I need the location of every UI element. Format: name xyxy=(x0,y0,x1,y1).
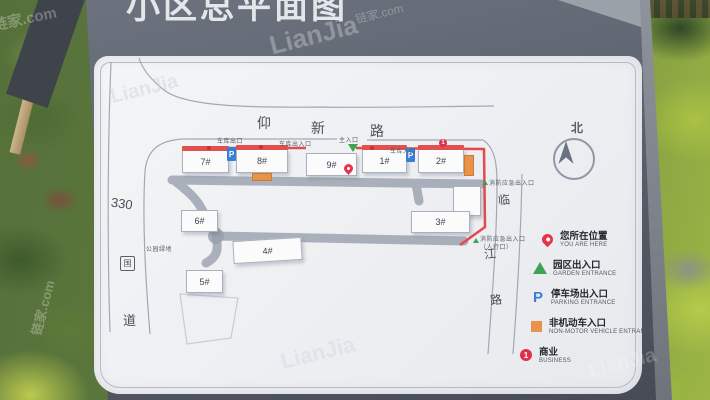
left-road-number: 330 xyxy=(110,195,134,213)
fence-trellis xyxy=(648,0,710,18)
business-circle-icon: 1 xyxy=(518,347,534,363)
park-green-label: 公园绿地 xyxy=(146,244,172,253)
building-7-label: 7# xyxy=(200,157,210,167)
parking-icon: P xyxy=(227,147,236,161)
legend-zh: 园区出入口 xyxy=(553,260,616,271)
map-legend: 您所在位置 YOU ARE HERE 园区出入口 GARDEN ENTRANCE… xyxy=(518,231,638,376)
top-road-upper-line xyxy=(139,58,494,107)
business-dot xyxy=(370,146,374,150)
legend-zh: 停车场出入口 xyxy=(551,289,615,300)
compass-icon xyxy=(553,138,595,180)
site-plan-panel: 7# 8# 9# 1# 2# 3# 6# 4# 5# P P 1 车库出口 xyxy=(94,56,642,394)
legend-zh: 商业 xyxy=(539,347,571,358)
right-road-name-char: 路 xyxy=(489,290,503,308)
nonmotor-entrance-icon xyxy=(252,173,272,181)
fire-exit-icon xyxy=(473,238,479,243)
legend-zh: 非机动车入口 xyxy=(549,318,654,329)
sign-title: 小区总平面图 xyxy=(126,0,348,28)
building-3-label: 3# xyxy=(435,217,445,227)
legend-en: PARKING ENTRANCE xyxy=(551,300,615,306)
business-marker: 1 xyxy=(439,139,447,147)
building-6-label: 6# xyxy=(194,216,204,226)
legend-en: YOU ARE HERE xyxy=(560,242,608,248)
parking-p-icon: P xyxy=(530,289,546,305)
building-8-label: 8# xyxy=(257,156,267,166)
building-4: 4# xyxy=(232,237,302,264)
building-1-label: 1# xyxy=(379,156,389,166)
main-entrance-icon xyxy=(348,144,358,152)
right-road-name-char: 临 xyxy=(497,190,511,208)
building-3: 3# xyxy=(411,211,470,233)
national-highway-shield: 国 xyxy=(120,256,135,271)
right-road-name-char: 江 xyxy=(483,244,497,262)
driveway-main xyxy=(172,180,482,184)
legend-en: NON-MOTOR VEHICLE ENTRANCE xyxy=(549,329,654,335)
compass-north-label: 北 xyxy=(571,119,583,136)
nonmotor-entrance-icon xyxy=(464,155,474,176)
highway-shield-char: 国 xyxy=(124,258,132,269)
orange-square-icon xyxy=(528,318,544,334)
photo-of-community-map-sign: 小区总平面图 xyxy=(0,0,710,400)
legend-row-garden-entrance: 园区出入口 GARDEN ENTRANCE xyxy=(532,260,638,284)
building-7: 7# xyxy=(182,150,229,173)
legend-en: GARDEN ENTRANCE xyxy=(553,271,616,277)
business-dot xyxy=(207,146,211,150)
main-entrance-label: 主入口 xyxy=(339,135,359,144)
building-5: 5# xyxy=(186,270,223,293)
building-9-label: 9# xyxy=(326,160,336,170)
building-2: 2# xyxy=(418,149,464,173)
legend-en: BUSINESS xyxy=(539,358,571,364)
building-5-label: 5# xyxy=(199,277,209,287)
legend-zh: 您所在位置 xyxy=(560,231,608,242)
top-road-name-char: 路 xyxy=(370,121,384,141)
compass-needle xyxy=(555,140,577,166)
plot-outline xyxy=(180,294,238,344)
location-pin-icon xyxy=(539,231,555,247)
driveway-connector xyxy=(416,184,419,201)
garage-entrance-exit-label: 车库出入口 xyxy=(279,139,312,148)
garage-entrance-label: 车库入口 xyxy=(390,146,416,155)
map-layer: 7# 8# 9# 1# 2# 3# 6# 4# 5# P P 1 车库出口 xyxy=(94,56,642,394)
building-8: 8# xyxy=(236,149,288,173)
fire-exit-label: 消防应急出入口 xyxy=(489,178,535,187)
green-triangle-icon xyxy=(532,260,548,276)
left-road-name-char: 道 xyxy=(123,310,136,329)
building-6: 6# xyxy=(181,210,218,232)
top-road-name-char: 仰 xyxy=(257,113,271,133)
business-dot xyxy=(259,145,263,149)
building-4-label: 4# xyxy=(262,245,273,256)
building-2-label: 2# xyxy=(436,156,446,166)
legend-row-parking-entrance: P 停车场出入口 PARKING ENTRANCE xyxy=(530,289,638,313)
legend-row-you-are-here: 您所在位置 YOU ARE HERE xyxy=(539,231,638,255)
garage-exit-label: 车库出口 xyxy=(217,136,243,145)
left-road-left-line xyxy=(108,62,111,332)
legend-row-nonmotor-entrance: 非机动车入口 NON-MOTOR VEHICLE ENTRANCE xyxy=(528,318,638,342)
legend-row-business: 1 商业 BUSINESS xyxy=(518,347,638,371)
fire-exit-icon xyxy=(482,180,488,185)
top-road-name-char: 新 xyxy=(311,118,325,138)
